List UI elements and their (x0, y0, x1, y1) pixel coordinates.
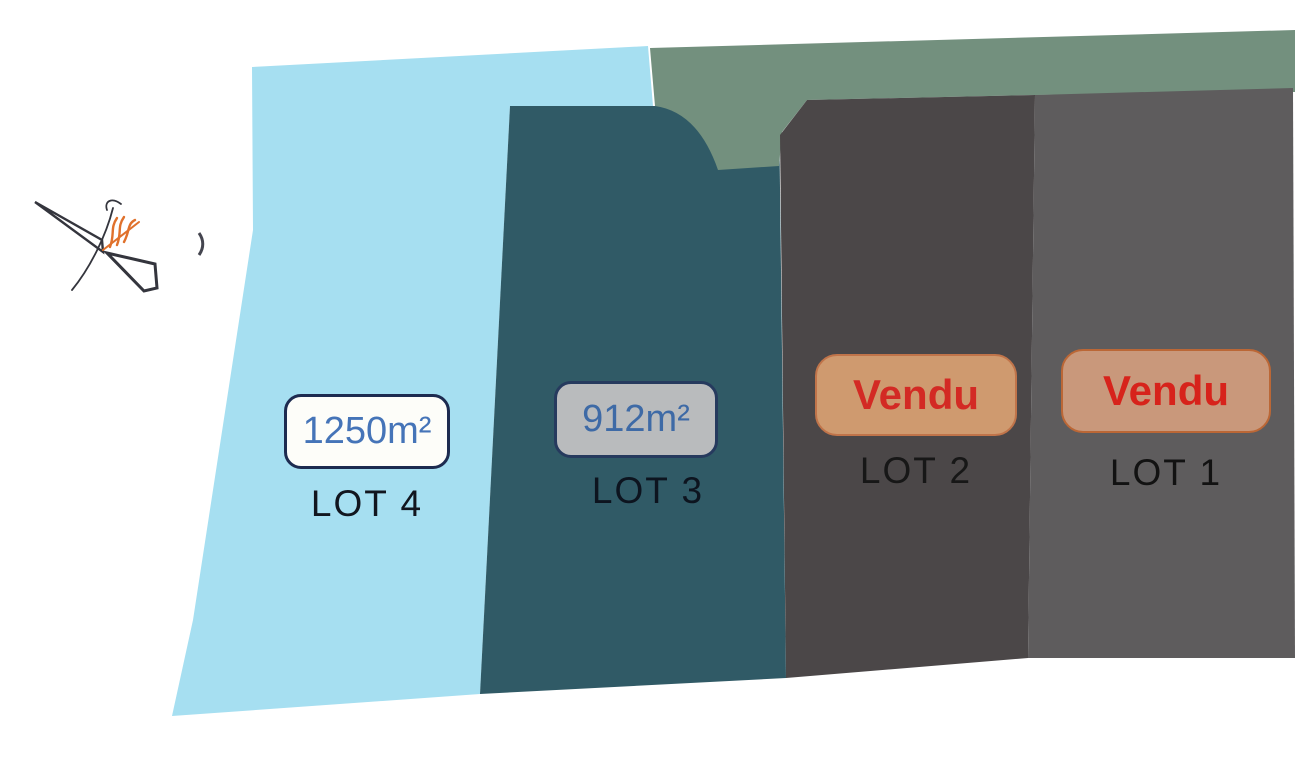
lot-1-sold-badge: Vendu (1061, 349, 1271, 433)
lot-1-label: LOT 1 (1061, 452, 1271, 494)
lot-plan: 1250m² LOT 4 912m² LOT 3 Vendu LOT 2 Ven… (0, 0, 1312, 768)
lot-3-area-value: 912m² (582, 398, 690, 441)
lot-1-sold-text: Vendu (1103, 367, 1229, 415)
lot-4-area-badge: 1250m² (284, 394, 450, 469)
lot-2-sold-badge: Vendu (815, 354, 1017, 436)
tick-mark (199, 233, 203, 255)
lot-3-area-badge: 912m² (554, 381, 718, 458)
north-arrow-icon (35, 200, 157, 291)
lot-2-sold-text: Vendu (853, 371, 979, 419)
lot-3-label: LOT 3 (556, 470, 740, 512)
lot-4-label: LOT 4 (284, 483, 450, 525)
lot-4-area-value: 1250m² (303, 410, 432, 453)
lot-2-label: LOT 2 (815, 450, 1017, 492)
